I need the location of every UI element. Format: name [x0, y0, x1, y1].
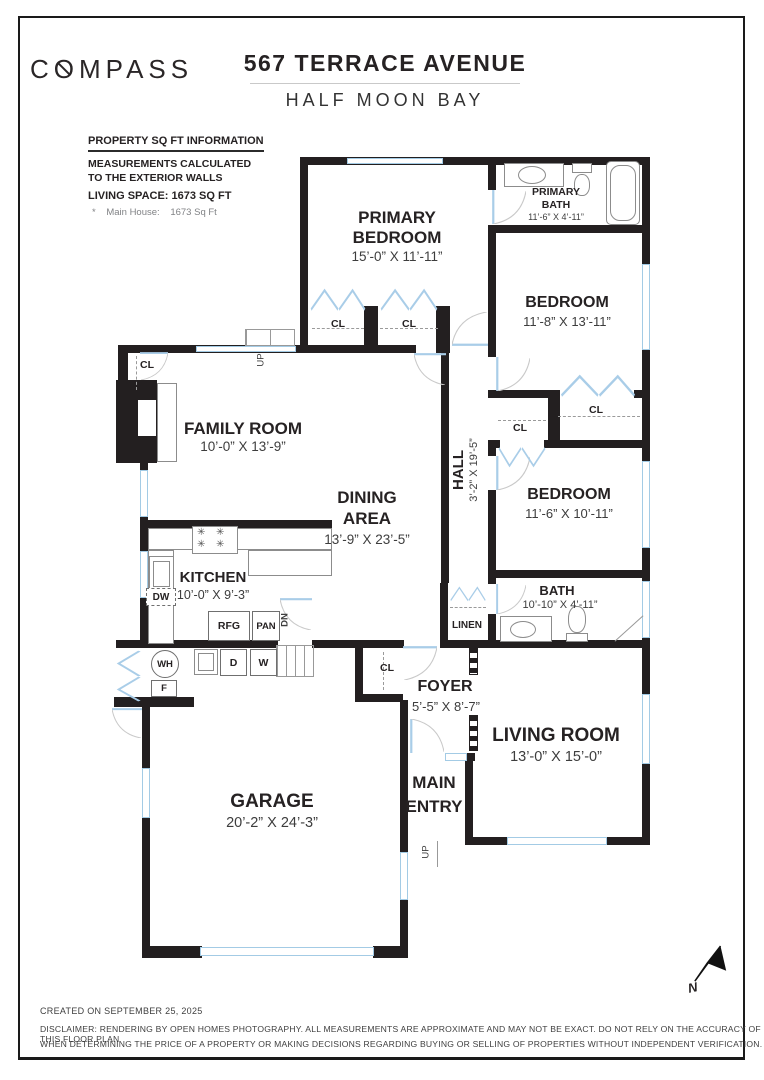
room-label-bath: BATH: [539, 584, 574, 597]
window: [196, 346, 296, 352]
room-dims-foyer: 5’-5” X 8’-7”: [412, 700, 480, 713]
room-label-family-room: FAMILY ROOM: [184, 420, 302, 437]
burner-icon: ✳: [197, 527, 205, 538]
info-calc-line1: MEASUREMENTS CALCULATED: [88, 158, 264, 170]
washer-label: W: [259, 657, 269, 669]
dryer-label: D: [230, 657, 238, 669]
closet-label: CL: [589, 405, 603, 416]
wall: [488, 233, 496, 357]
closet-label: CL: [140, 360, 154, 371]
wall: [118, 345, 128, 385]
closet-rod-line: [498, 420, 546, 421]
fireplace-firebox: [138, 400, 156, 436]
column-post: [469, 647, 478, 675]
column-post: [469, 715, 478, 751]
window: [142, 768, 150, 818]
dining-hall-door: [414, 353, 446, 385]
wall: [436, 306, 450, 353]
room-label-primary-bedroom2: BEDROOM: [353, 229, 442, 246]
bathtub-inner: [610, 165, 636, 221]
primary-bath-door: [492, 190, 526, 224]
washer: W: [250, 649, 277, 676]
wall: [607, 837, 650, 845]
info-note-star: *: [92, 207, 96, 218]
window: [140, 470, 148, 517]
window: [445, 753, 467, 761]
bifold-door-icon: [380, 288, 438, 312]
closet-label: CL: [380, 663, 394, 674]
burner-icon: ✳: [197, 539, 205, 550]
stairs-up-label: UP: [256, 353, 266, 366]
room-dims-family-room: 10’-0” X 13’-9”: [200, 440, 286, 454]
property-info-block: PROPERTY SQ FT INFORMATION MEASUREMENTS …: [88, 131, 264, 218]
sink: [510, 621, 536, 638]
refrigerator: RFG: [208, 611, 250, 641]
floor-plan-page: C O MPASS 567 TERRACE AVENUE HALF MOON B…: [0, 0, 764, 1080]
wall: [488, 575, 496, 584]
title-underline: [250, 83, 520, 84]
room-label-linen: LINEN: [452, 621, 482, 631]
bifold-door-icon: [450, 586, 486, 602]
window: [507, 837, 607, 845]
closet-rod-line: [136, 356, 137, 390]
window: [642, 581, 650, 638]
room-label-kitchen: KITCHEN: [180, 570, 247, 585]
wall: [355, 694, 403, 702]
bifold-door-icon: [310, 288, 366, 312]
compass-o-icon: O: [54, 54, 79, 85]
wall: [544, 440, 650, 448]
kitchen-peninsula: [248, 550, 332, 576]
wall: [400, 700, 408, 852]
bath-door: [496, 584, 526, 614]
room-dims-primary-bedroom: 15’-0” X 11’-11”: [351, 250, 442, 264]
wall: [300, 157, 308, 353]
stairs-dn-label: DN: [280, 613, 290, 627]
wall: [465, 753, 473, 845]
closet-rod-line: [558, 416, 640, 417]
pantry-label: PAN: [256, 621, 275, 632]
room-dims-bath: 10’-10” X 4’-11”: [523, 600, 598, 611]
primary-bedroom-door: [452, 312, 488, 346]
closet-label: CL: [513, 423, 527, 434]
sink: [518, 166, 546, 184]
burner-icon: ✳: [216, 539, 224, 550]
kitchen-sink-basin: [153, 561, 170, 587]
furnace-label: F: [161, 683, 167, 694]
dryer: D: [220, 649, 247, 676]
room-label-dining: DINING: [337, 489, 397, 506]
wall: [488, 614, 496, 648]
logo-text-pre: C: [30, 54, 54, 84]
info-title: PROPERTY SQ FT INFORMATION: [88, 135, 264, 152]
refrigerator-label: RFG: [218, 620, 240, 632]
compass-logo: C O MPASS: [30, 54, 193, 85]
closet-label: CL: [402, 319, 416, 330]
wall: [488, 448, 496, 456]
water-heater: WH: [151, 650, 179, 678]
dishwasher-label: DW: [153, 592, 170, 603]
wall: [488, 570, 650, 578]
front-door: [410, 719, 444, 753]
wall: [300, 345, 416, 353]
toilet-tank: [566, 633, 588, 642]
wall: [488, 157, 496, 190]
wall: [142, 946, 202, 958]
info-living-space: LIVING SPACE: 1673 SQ FT: [88, 190, 264, 202]
stairs-down: [276, 645, 314, 677]
fireplace-hearth: [157, 383, 177, 462]
wall: [355, 640, 363, 702]
room-label-dining2: AREA: [343, 510, 391, 527]
room-label-bedroom2: BEDROOM: [527, 487, 611, 503]
wall: [142, 706, 150, 768]
wall: [364, 306, 378, 353]
room-label-garage: GARAGE: [230, 792, 313, 811]
porch-up-label: UP: [421, 845, 431, 858]
wall: [488, 490, 496, 575]
window: [642, 264, 650, 350]
room-dims-bedroom1: 11’-8” X 13’-11”: [523, 315, 611, 328]
closet-label: CL: [331, 319, 345, 330]
room-dims-living-room: 13’-0” X 15’-0”: [510, 750, 602, 765]
info-note: * Main House: 1673 Sq Ft: [88, 207, 264, 218]
info-calc-line2: TO THE EXTERIOR WALLS: [88, 172, 264, 184]
north-arrow-icon: [692, 942, 730, 990]
toilet-tank: [572, 163, 592, 173]
window: [400, 852, 408, 900]
info-note-label: Main House:: [106, 207, 159, 218]
wall: [142, 818, 150, 948]
hall-dims: 3’-2” X 19’-5”: [468, 438, 481, 502]
wall: [488, 225, 650, 233]
room-label-main-entry: MAIN: [412, 774, 455, 791]
bifold-door-icon: [116, 650, 142, 702]
page-title: 567 TERRACE AVENUE: [244, 52, 527, 75]
bifold-door-icon: [498, 446, 546, 468]
room-label-primary-bedroom: PRIMARY: [358, 209, 436, 226]
room-dims-primary-bath: 11’-6” X 4’-11”: [528, 213, 584, 222]
window: [642, 694, 650, 764]
page-subtitle: HALF MOON BAY: [286, 91, 485, 109]
room-dims-bedroom2: 11’-6” X 10’-11”: [525, 507, 613, 520]
logo-text-post: MPASS: [79, 54, 193, 84]
kitchen-counter: [148, 528, 332, 550]
room-dims-kitchen: 10’-0” X 9’-3”: [177, 589, 249, 602]
room-label-bedroom1: BEDROOM: [525, 295, 609, 311]
garage-side-door: [112, 708, 142, 738]
room-dims-dining: 13’-9” X 23’-5”: [324, 533, 410, 547]
dishwasher: DW: [146, 588, 176, 606]
garage-door: [200, 947, 374, 956]
footer-created: CREATED ON SEPTEMBER 25, 2025: [40, 1006, 203, 1016]
foyer-closet-door: [403, 646, 437, 680]
room-label-hall: HALL 3’-2” X 19’-5”: [444, 400, 488, 540]
wall: [465, 837, 507, 845]
room-label-primary-bath: PRIMARY: [532, 187, 580, 198]
wall: [440, 583, 448, 648]
exterior-steps: [245, 329, 295, 346]
room-label-primary-bath2: BATH: [542, 200, 570, 211]
pantry: PAN: [252, 611, 280, 641]
water-heater-label: WH: [157, 659, 173, 670]
room-dims-garage: 20’-2” X 24’-3”: [226, 816, 318, 831]
bedroom1-door: [496, 357, 530, 391]
burner-icon: ✳: [216, 527, 224, 538]
room-label-living-room: LIVING ROOM: [492, 726, 620, 745]
info-note-value: 1673 Sq Ft: [170, 207, 216, 218]
wall: [116, 640, 278, 648]
porch-step-line: [437, 841, 438, 867]
room-label-foyer: FOYER: [417, 679, 472, 695]
laundry-sink-basin: [198, 653, 214, 671]
window: [642, 461, 650, 548]
bifold-door-icon: [560, 374, 636, 398]
wall: [400, 900, 408, 958]
room-label-main-entry2: ENTRY: [406, 798, 463, 815]
hall-name: HALL: [451, 450, 468, 490]
footer-disclaimer-line2: WHEN DETERMINING THE PRICE OF A PROPERTY…: [40, 1039, 762, 1049]
window: [347, 158, 443, 164]
furnace: F: [151, 680, 177, 697]
wall: [634, 390, 650, 398]
closet-rod-line: [450, 607, 486, 608]
